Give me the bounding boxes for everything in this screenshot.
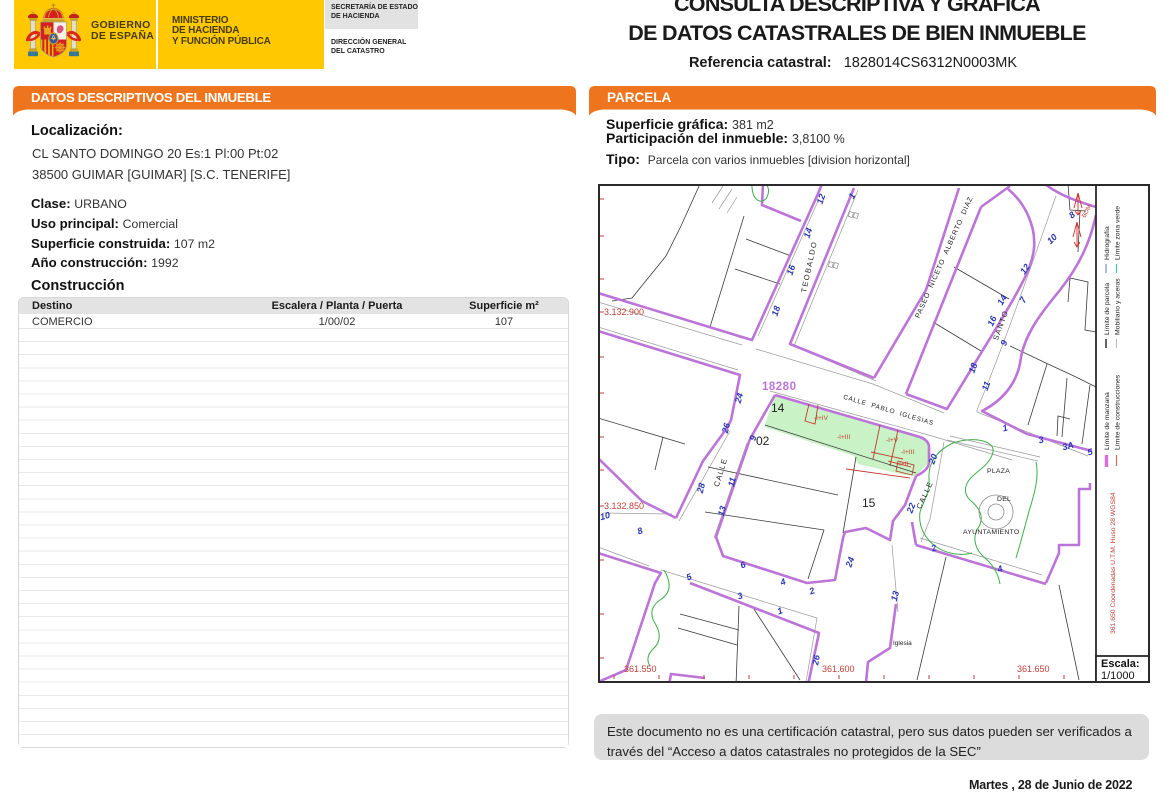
svg-text:14: 14 bbox=[771, 401, 785, 415]
svg-text:361.650 Coordenadas U.T.M. Hus: 361.650 Coordenadas U.T.M. Huso 28 WGS84 bbox=[1110, 492, 1117, 634]
svg-text:-I+V: -I+V bbox=[886, 437, 899, 444]
svg-text:Hidrografía: Hidrografía bbox=[1104, 226, 1111, 260]
svg-text:Límite de construcciones: Límite de construcciones bbox=[1115, 374, 1122, 450]
svg-text:18280: 18280 bbox=[762, 381, 796, 393]
svg-text:361.600: 361.600 bbox=[822, 664, 855, 674]
svg-text:02: 02 bbox=[756, 434, 770, 448]
svg-text:PLAZA: PLAZA bbox=[987, 468, 1010, 475]
svg-text:361.650: 361.650 bbox=[1017, 664, 1050, 674]
svg-text:-I+IV: -I+IV bbox=[814, 415, 829, 422]
svg-text:-I+II: -I+II bbox=[897, 461, 909, 468]
svg-text:3.132.900: 3.132.900 bbox=[604, 307, 644, 317]
svg-text:Límite zona verde: Límite zona verde bbox=[1115, 206, 1122, 260]
svg-text:-I+III: -I+III bbox=[901, 449, 914, 456]
svg-text:Mobiliario y aceras: Mobiliario y aceras bbox=[1115, 278, 1122, 335]
svg-text:Iglesia: Iglesia bbox=[893, 640, 912, 647]
svg-text:3.132.850: 3.132.850 bbox=[604, 501, 644, 511]
svg-text:Escala:: Escala: bbox=[1101, 658, 1140, 670]
svg-text:DEL: DEL bbox=[997, 496, 1011, 503]
svg-text:361.550: 361.550 bbox=[624, 664, 657, 674]
svg-text:1/1000: 1/1000 bbox=[1101, 670, 1135, 682]
svg-text:AYUNTAMIENTO: AYUNTAMIENTO bbox=[963, 529, 1019, 536]
svg-text:Límite de parcela: Límite de parcela bbox=[1104, 283, 1111, 335]
svg-text:15: 15 bbox=[862, 496, 876, 510]
svg-text:Límite de manzana: Límite de manzana bbox=[1104, 392, 1111, 450]
svg-text:-I+III: -I+III bbox=[837, 434, 850, 441]
